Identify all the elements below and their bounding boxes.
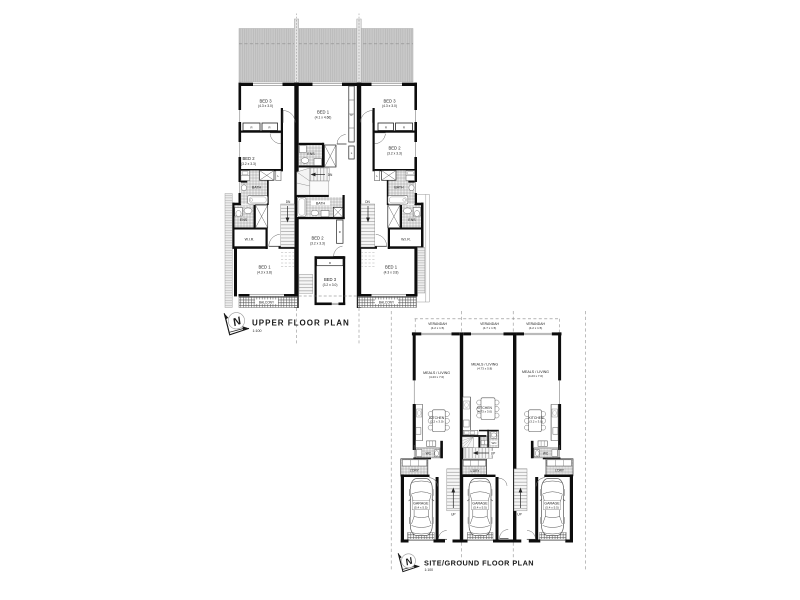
svg-text:L'DRY: L'DRY [470,469,480,473]
svg-text:L'DRY: L'DRY [555,469,565,473]
svg-text:BATH: BATH [394,185,404,189]
svg-text:BATH: BATH [316,202,326,206]
svg-text:UP: UP [491,452,495,456]
svg-text:(4.7 x 1.5): (4.7 x 1.5) [483,326,497,330]
svg-text:L'DRY: L'DRY [410,469,420,473]
svg-text:(4.1 x 4.66): (4.1 x 4.66) [315,115,332,119]
svg-text:UP: UP [517,513,521,517]
svg-text:BALCONY: BALCONY [379,300,395,304]
svg-text:DN: DN [286,200,291,204]
svg-text:(5.4 x 5.5): (5.4 x 5.5) [414,506,428,510]
svg-text:(3.2 x 3.3): (3.2 x 3.3) [310,241,325,245]
svg-text:WC: WC [492,441,498,445]
svg-text:R: R [350,113,352,117]
svg-text:(4.3 x 3.0): (4.3 x 3.0) [258,104,273,108]
svg-text:DN: DN [365,200,370,204]
svg-text:ENS: ENS [408,218,416,222]
svg-text:BED 1: BED 1 [258,265,271,270]
svg-text:BED 3: BED 3 [324,277,337,282]
svg-text:DN: DN [328,173,333,177]
svg-text:ENS: ENS [307,152,315,156]
svg-text:(5.4 x 5.5): (5.4 x 5.5) [545,506,559,510]
svg-text:R: R [339,230,341,234]
svg-text:(4.3 x 3.8): (4.3 x 3.8) [384,270,399,274]
svg-text:R: R [403,126,405,130]
svg-text:(4.3 x 3.0): (4.3 x 3.0) [382,104,397,108]
svg-text:(4.73 x 5.8): (4.73 x 5.8) [477,367,492,371]
svg-text:SITE/GROUND FLOOR PLAN: SITE/GROUND FLOOR PLAN [424,559,534,568]
svg-text:(4.23 x 7.0): (4.23 x 7.0) [528,374,543,378]
svg-text:(4.73 x 3.0): (4.73 x 3.0) [477,409,492,413]
svg-text:BED 3: BED 3 [259,98,272,103]
svg-text:(4.2 x 1.5): (4.2 x 1.5) [529,326,543,330]
svg-text:UPPER FLOOR PLAN: UPPER FLOOR PLAN [252,319,350,328]
svg-text:W.I.R.: W.I.R. [401,238,411,242]
svg-text:ENS: ENS [240,218,248,222]
svg-text:(4.23 x 7.0): (4.23 x 7.0) [429,375,444,379]
svg-text:(3.2 x 3.0): (3.2 x 3.0) [323,283,338,287]
svg-text:R: R [268,126,270,130]
svg-text:UP: UP [451,513,455,517]
svg-text:R: R [329,261,331,265]
svg-text:1:100: 1:100 [253,329,262,333]
svg-text:R: R [250,126,252,130]
svg-text:W.I.R.: W.I.R. [245,238,255,242]
svg-text:BATH: BATH [252,185,262,189]
svg-text:1:100: 1:100 [425,568,434,572]
svg-text:BED 1: BED 1 [385,265,398,270]
svg-text:R: R [385,126,387,130]
svg-text:WC: WC [543,451,549,455]
svg-text:BED 2: BED 2 [388,146,401,151]
svg-text:BED 2: BED 2 [242,156,255,161]
svg-text:BALCONY: BALCONY [259,300,275,304]
svg-text:(3.2 x 3.3): (3.2 x 3.3) [387,151,402,155]
svg-text:(3.2 x 3.0): (3.2 x 3.0) [430,419,444,423]
svg-text:(4.3 x 3.8): (4.3 x 3.8) [257,270,272,274]
svg-text:BED 3: BED 3 [383,98,396,103]
svg-text:(3.2 x 3.3): (3.2 x 3.3) [241,162,256,166]
svg-text:(5.4 x 5.5): (5.4 x 5.5) [473,506,487,510]
svg-text:(3.2 x 3.0): (3.2 x 3.0) [529,419,543,423]
svg-text:BED 2: BED 2 [311,236,324,241]
svg-text:(4.2 x 1.5): (4.2 x 1.5) [431,326,445,330]
svg-text:BED 1: BED 1 [317,110,330,115]
svg-text:WC: WC [426,451,432,455]
